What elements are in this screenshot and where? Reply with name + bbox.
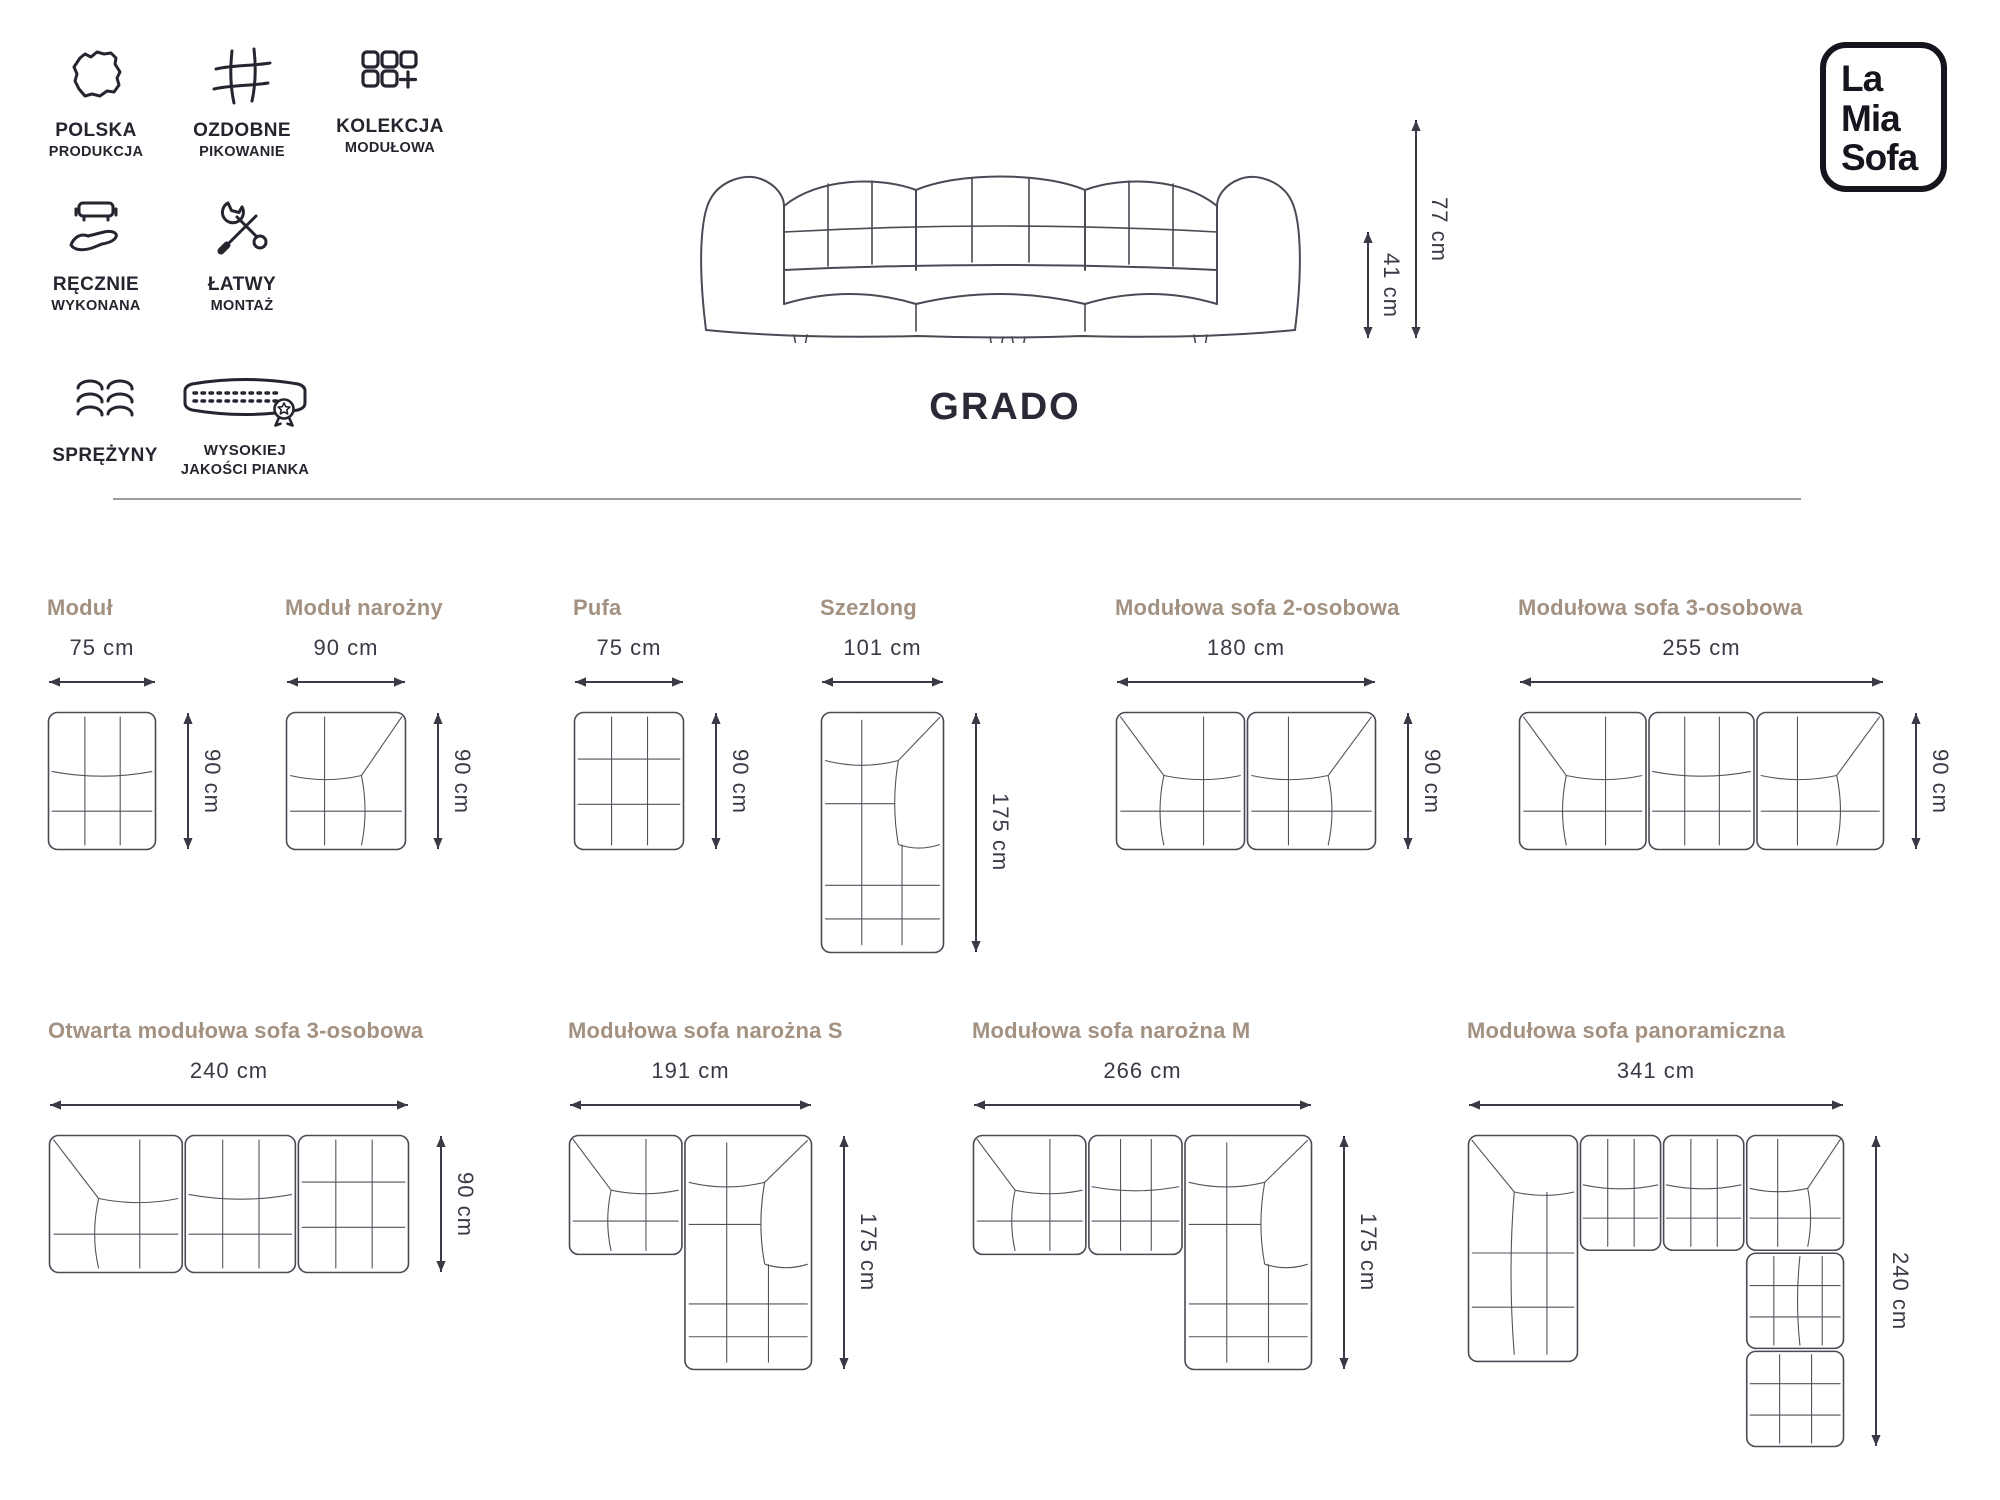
config-card-sofa-3-osobowa: Modułowa sofa 3-osobowa 255 cm 90 cm — [1518, 595, 1965, 861]
tools-icon — [210, 197, 274, 263]
sofa-top-view-drawing — [47, 711, 157, 851]
sofa-top-view-drawing — [48, 1134, 410, 1274]
badge-label: RĘCZNIE — [36, 273, 156, 297]
badge-label: KOLEKCJA — [325, 115, 455, 139]
height-dimension-arrow — [709, 711, 723, 851]
sofa-top-view-drawing — [285, 711, 407, 851]
height-dimension-arrow — [434, 1134, 448, 1274]
badge-polska-produkcja: POLSKA PRODUKCJA — [36, 45, 156, 162]
badge-sublabel: PIKOWANIE — [182, 143, 302, 163]
height-dimension-label: 90 cm — [1927, 711, 1953, 851]
badge-latwy-montaz: ŁATWY MONTAŻ — [182, 197, 302, 316]
badge-sublabel: JAKOŚCI PIANKA — [175, 461, 315, 481]
height-dimension-arrow — [837, 1134, 851, 1371]
config-title: Modułowa sofa 2-osobowa — [1115, 595, 1400, 621]
badge-wysokiej-jakosci-pianka: WYSOKIEJ JAKOŚCI PIANKA — [175, 372, 315, 480]
config-title: Moduł narożny — [285, 595, 443, 621]
sofa-front-view-drawing — [678, 98, 1323, 343]
width-dimension-label: 75 cm — [573, 635, 685, 661]
config-title: Pufa — [573, 595, 621, 621]
seat-height-dimension-label: 41 cm — [1378, 230, 1404, 340]
springs-icon — [70, 372, 140, 434]
hand-sofa-icon — [64, 197, 128, 263]
sofa-top-view-drawing — [568, 1134, 813, 1371]
badge-sublabel: PRODUKCJA — [36, 143, 156, 163]
width-dimension-arrow — [573, 675, 685, 689]
la-mia-sofa-logo: La Mia Sofa — [1820, 42, 1947, 192]
section-divider — [113, 498, 1801, 500]
width-dimension-label: 90 cm — [285, 635, 407, 661]
badge-label: ŁATWY — [182, 273, 302, 297]
height-dimension-arrow — [1337, 1134, 1351, 1371]
sofa-top-view-drawing — [1467, 1134, 1845, 1448]
config-card-szezlong: Szezlong 101 cm 175 cm — [820, 595, 1025, 964]
quilting-grid-icon — [210, 45, 274, 109]
config-title: Modułowa sofa panoramiczna — [1467, 1018, 1785, 1044]
config-title: Modułowa sofa narożna S — [568, 1018, 843, 1044]
width-dimension-label: 255 cm — [1518, 635, 1885, 661]
height-dimension-label: 90 cm — [452, 1134, 478, 1274]
height-dimension-arrow — [1401, 711, 1415, 851]
sofa-top-view-drawing — [1115, 711, 1377, 851]
width-dimension-label: 101 cm — [820, 635, 945, 661]
height-dimension-label: 90 cm — [449, 711, 475, 851]
config-card-pufa: Pufa 75 cm 90 cm — [573, 595, 765, 861]
width-dimension-arrow — [568, 1098, 813, 1112]
badge-label: POLSKA — [36, 119, 156, 143]
logo-line: Sofa — [1841, 138, 1941, 178]
sofa-top-view-drawing — [573, 711, 685, 851]
config-title: Szezlong — [820, 595, 917, 621]
height-dimension-arrow — [1909, 711, 1923, 851]
badge-sublabel: MODUŁOWA — [325, 139, 455, 159]
height-dimension-arrow — [431, 711, 445, 851]
badge-ozdobne-pikowanie: OZDOBNE PIKOWANIE — [182, 45, 302, 162]
width-dimension-arrow — [820, 675, 945, 689]
height-dimension-label: 240 cm — [1887, 1134, 1913, 1448]
width-dimension-arrow — [1518, 675, 1885, 689]
sofa-top-view-drawing — [1518, 711, 1885, 851]
width-dimension-arrow — [1467, 1098, 1845, 1112]
sofa-top-view-drawing — [820, 711, 945, 954]
overall-height-dimension-label: 77 cm — [1426, 118, 1452, 340]
badge-kolekcja-modulowa: KOLEKCJA MODUŁOWA — [325, 45, 455, 158]
width-dimension-arrow — [972, 1098, 1313, 1112]
seat-height-dimension-arrow — [1360, 230, 1376, 340]
width-dimension-arrow — [48, 1098, 410, 1112]
badge-label: SPRĘŻYNY — [40, 444, 170, 468]
height-dimension-label: 175 cm — [1355, 1134, 1381, 1371]
config-card-narozna-s: Modułowa sofa narożna S 191 cm 175 cm — [568, 1018, 893, 1381]
width-dimension-arrow — [285, 675, 407, 689]
badge-recznie-wykonana: RĘCZNIE WYKONANA — [36, 197, 156, 316]
spec-sheet-page: POLSKA PRODUKCJA OZDOBNE PIKOWANIE — [0, 0, 2000, 1500]
logo-line: Mia — [1841, 99, 1941, 139]
width-dimension-label: 240 cm — [48, 1058, 410, 1084]
config-title: Modułowa sofa narożna M — [972, 1018, 1250, 1044]
height-dimension-label: 90 cm — [199, 711, 225, 851]
height-dimension-arrow — [1869, 1134, 1883, 1448]
badge-sublabel: MONTAŻ — [182, 297, 302, 317]
badge-sublabel: WYKONANA — [36, 297, 156, 317]
foam-award-icon — [180, 372, 310, 432]
modular-squares-icon — [358, 45, 422, 105]
badge-sprezyny: SPRĘŻYNY — [40, 372, 170, 468]
config-card-sofa-2-osobowa: Modułowa sofa 2-osobowa 180 cm 90 cm — [1115, 595, 1457, 861]
config-card-modul: Moduł 75 cm 90 cm — [47, 595, 237, 861]
config-card-panoramiczna: Modułowa sofa panoramiczna 341 cm 240 cm — [1467, 1018, 1925, 1458]
overall-height-dimension-arrow — [1408, 118, 1424, 340]
config-card-modul-narozny: Moduł narożny 90 cm 90 cm — [285, 595, 487, 861]
config-title: Modułowa sofa 3-osobowa — [1518, 595, 1803, 621]
width-dimension-label: 75 cm — [47, 635, 157, 661]
width-dimension-label: 191 cm — [568, 1058, 813, 1084]
height-dimension-arrow — [181, 711, 195, 851]
logo-line: La — [1841, 59, 1941, 99]
badge-label: OZDOBNE — [182, 119, 302, 143]
width-dimension-arrow — [1115, 675, 1377, 689]
height-dimension-label: 175 cm — [987, 711, 1013, 954]
height-dimension-arrow — [969, 711, 983, 954]
badge-label: WYSOKIEJ — [175, 442, 315, 461]
config-title: Moduł — [47, 595, 113, 621]
width-dimension-label: 341 cm — [1467, 1058, 1845, 1084]
height-dimension-label: 90 cm — [1419, 711, 1445, 851]
config-card-narozna-m: Modułowa sofa narożna M 266 cm 175 cm — [972, 1018, 1393, 1381]
config-title: Otwarta modułowa sofa 3-osobowa — [48, 1018, 423, 1044]
height-dimension-label: 90 cm — [727, 711, 753, 851]
poland-map-icon — [64, 45, 128, 109]
width-dimension-arrow — [47, 675, 157, 689]
width-dimension-label: 180 cm — [1115, 635, 1377, 661]
width-dimension-label: 266 cm — [972, 1058, 1313, 1084]
config-card-otwarta-sofa-3-osobowa: Otwarta modułowa sofa 3-osobowa 240 cm 9… — [48, 1018, 490, 1284]
sofa-top-view-drawing — [972, 1134, 1313, 1371]
height-dimension-label: 175 cm — [855, 1134, 881, 1371]
product-name: GRADO — [855, 386, 1155, 429]
